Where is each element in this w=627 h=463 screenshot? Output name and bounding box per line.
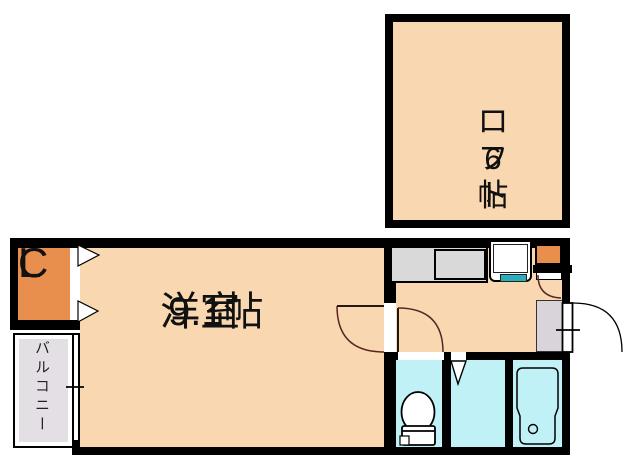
closet-door-triangle-icon	[78, 245, 99, 266]
fixture-overlay	[0, 0, 627, 463]
closet-door-triangle-icon	[78, 301, 98, 322]
threshold-door-arc	[538, 275, 561, 298]
bathtub-drain-icon	[529, 425, 538, 434]
front-door-leaf	[563, 303, 573, 352]
room-door-arc	[337, 306, 384, 352]
balcony-label: バルコニー	[31, 340, 52, 448]
toilet-door-arc	[398, 308, 443, 352]
floorplan: ロフト 6帖	[0, 0, 627, 463]
front-door-arc	[573, 303, 622, 352]
bathtub-icon	[517, 368, 558, 444]
closet-letter-l: L	[18, 242, 41, 283]
washroom-door-triangle-icon	[451, 361, 466, 384]
western-room-size: 9.1帖	[168, 288, 264, 337]
toilet-tank-corner	[400, 436, 409, 445]
